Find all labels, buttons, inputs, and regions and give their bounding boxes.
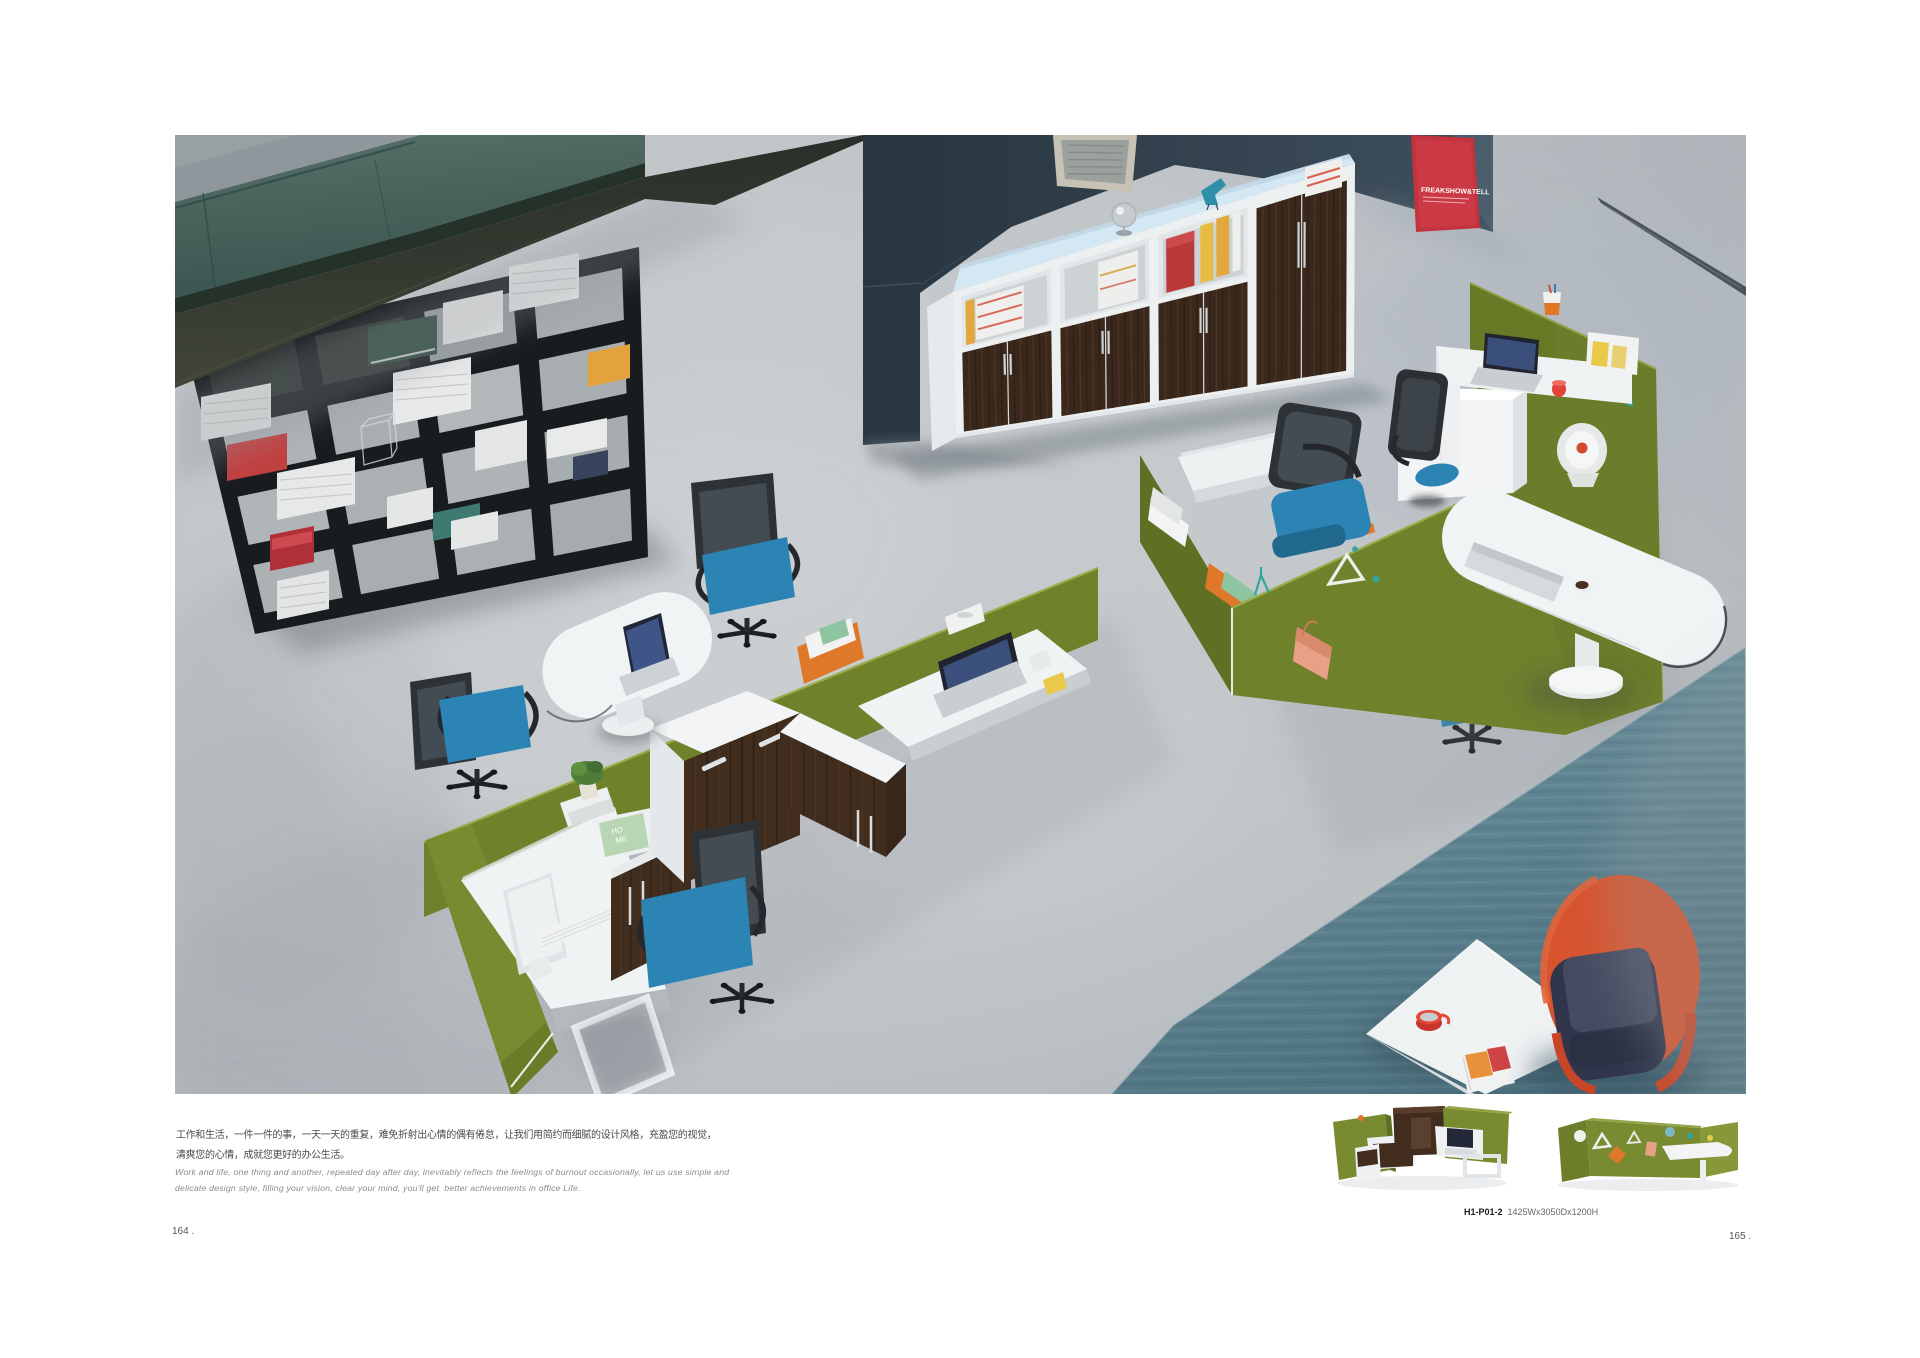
svg-text:ME: ME [615, 834, 628, 845]
